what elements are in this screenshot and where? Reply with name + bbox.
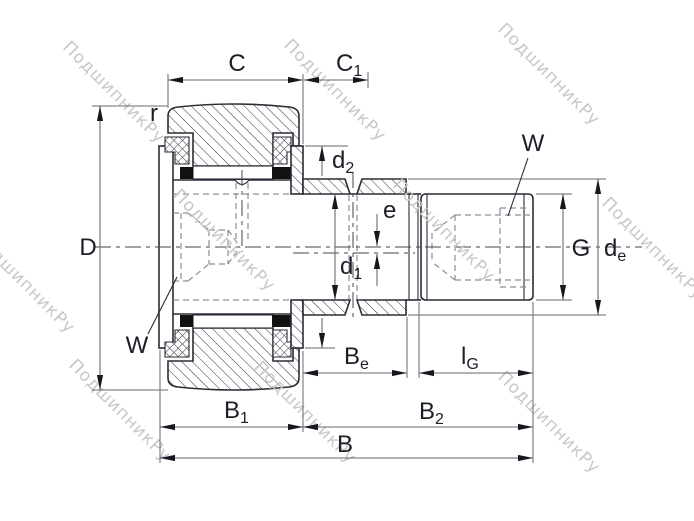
collar-flange-top bbox=[291, 146, 303, 194]
side-washer-bottom-left bbox=[180, 315, 193, 327]
seal-bottom-right bbox=[273, 330, 291, 357]
label-C1: C1 bbox=[336, 50, 362, 80]
collar-sleeve-bottom-right bbox=[357, 300, 406, 315]
watermark: ПодшипникРу bbox=[64, 355, 175, 466]
collar-sleeve-bottom-left bbox=[303, 300, 350, 315]
label-lG: lG bbox=[461, 343, 479, 373]
side-washer-top-right bbox=[272, 167, 291, 179]
label-D: D bbox=[79, 234, 96, 261]
label-B1: B1 bbox=[224, 397, 249, 427]
seal-top-right bbox=[273, 137, 291, 164]
watermark: ПодшипникРу bbox=[168, 185, 279, 296]
watermark: ПодшипникРу bbox=[493, 367, 604, 478]
label-r: r bbox=[150, 100, 158, 127]
watermark: ПодшипникРу bbox=[58, 37, 169, 148]
watermark: ПодшипникРу bbox=[493, 19, 604, 130]
side-washer-bottom-right bbox=[272, 315, 291, 327]
collar-flange-bottom bbox=[291, 300, 303, 348]
cam-follower-section-diagram: ПодшипникРу ПодшипникРу ПодшипникРу Подш… bbox=[0, 0, 694, 521]
label-W-top: W bbox=[522, 130, 545, 157]
label-B: B bbox=[337, 431, 353, 458]
side-washer-top-left bbox=[180, 167, 193, 179]
needle-rollers-bottom bbox=[193, 315, 273, 328]
label-e: e bbox=[383, 197, 396, 224]
label-d2: d2 bbox=[332, 147, 354, 177]
label-Be: Be bbox=[344, 343, 369, 373]
label-G: G bbox=[572, 235, 591, 262]
label-d1: d1 bbox=[340, 253, 362, 283]
label-B2: B2 bbox=[419, 398, 444, 428]
watermark: ПодшипникРу bbox=[0, 227, 79, 338]
bearing-technical-drawing: ПодшипникРу ПодшипникРу ПодшипникРу Подш… bbox=[0, 0, 694, 521]
label-de: de bbox=[604, 235, 626, 265]
label-W-bottom: W bbox=[126, 332, 149, 359]
needle-rollers-top bbox=[193, 166, 273, 179]
label-C: C bbox=[228, 50, 245, 77]
